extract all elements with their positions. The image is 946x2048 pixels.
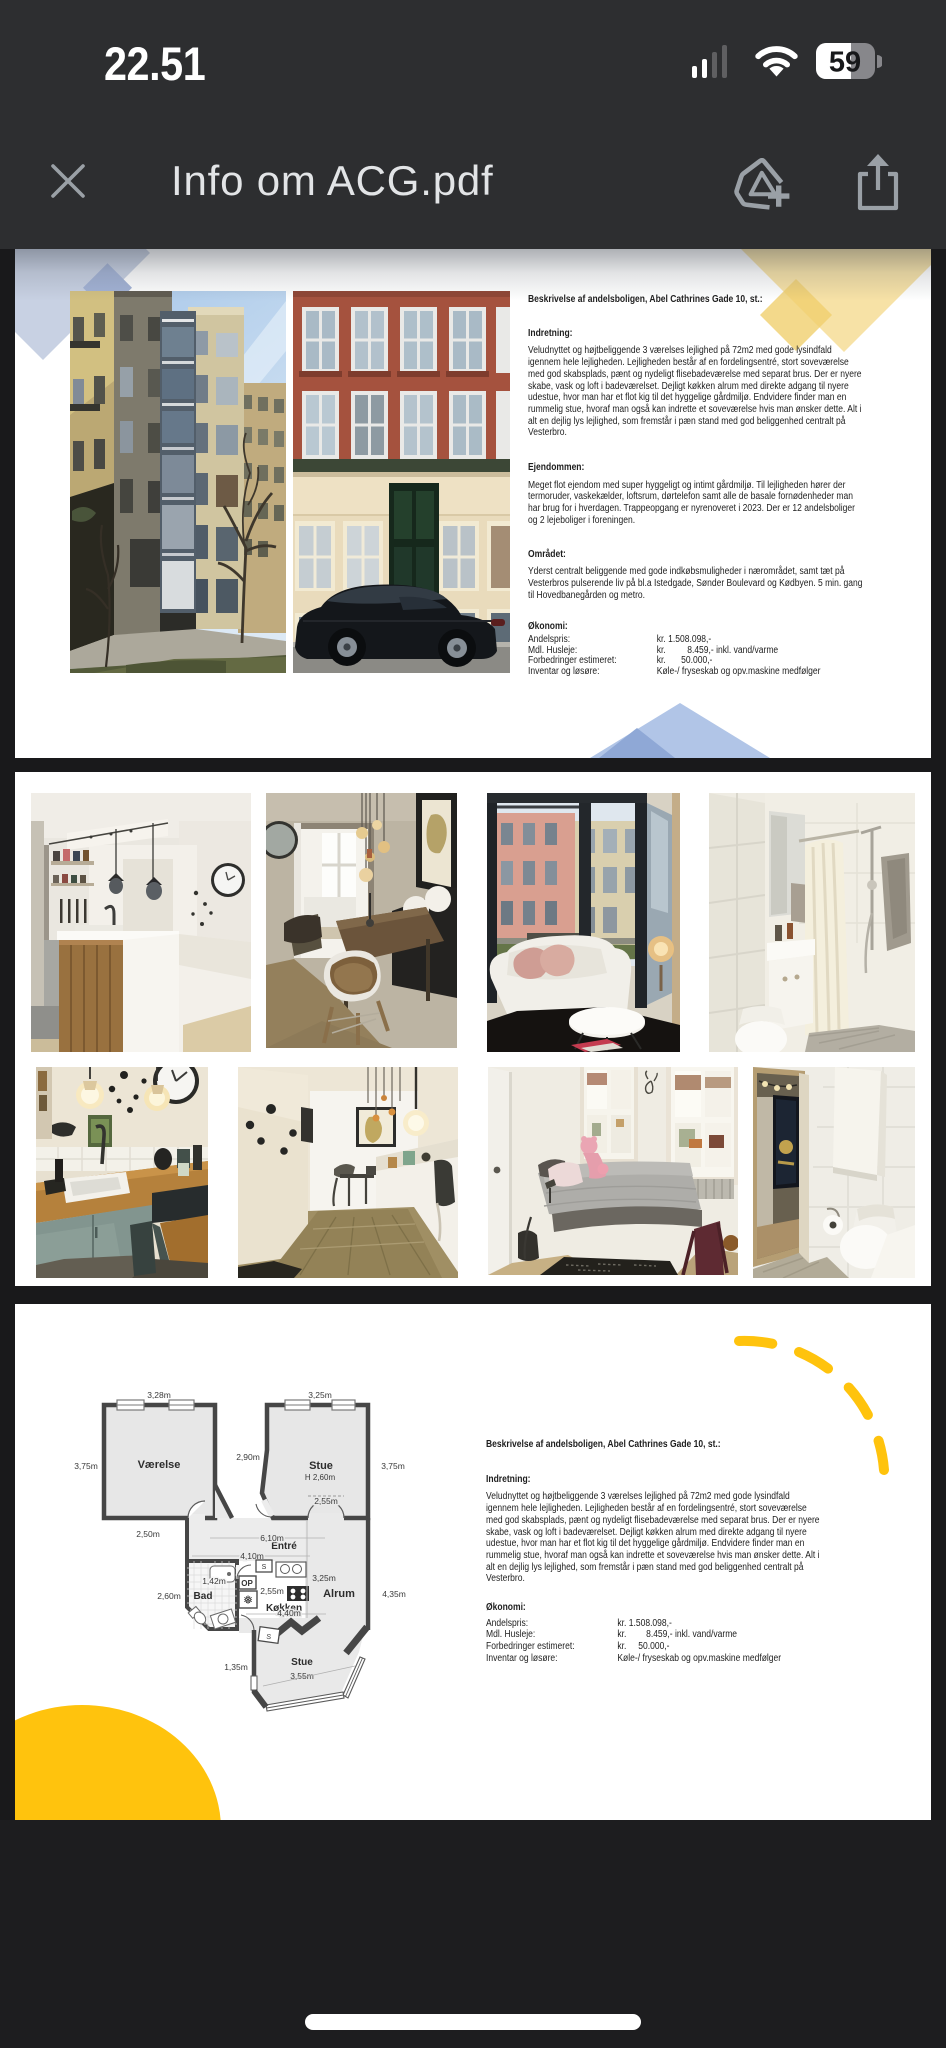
svg-text:4,40m: 4,40m: [277, 1608, 301, 1618]
svg-text:3,25m: 3,25m: [312, 1573, 336, 1583]
svg-text:6,10m: 6,10m: [260, 1533, 284, 1543]
svg-text:2,90m: 2,90m: [236, 1452, 260, 1462]
svg-text:3,25m: 3,25m: [308, 1390, 332, 1400]
svg-text:3,75m: 3,75m: [381, 1461, 405, 1471]
svg-text:Værelse: Værelse: [138, 1459, 181, 1471]
svg-text:2,55m: 2,55m: [260, 1586, 284, 1596]
svg-text:Stue: Stue: [309, 1460, 333, 1472]
svg-text:Alrum: Alrum: [323, 1588, 355, 1600]
svg-text:2,60m: 2,60m: [157, 1591, 181, 1601]
svg-text:1,42m: 1,42m: [202, 1576, 226, 1586]
svg-text:4,35m: 4,35m: [382, 1589, 406, 1599]
svg-text:Bad: Bad: [194, 1591, 213, 1602]
svg-text:1,35m: 1,35m: [224, 1662, 248, 1672]
svg-text:H 2,60m: H 2,60m: [305, 1473, 336, 1482]
svg-text:Stue: Stue: [291, 1657, 313, 1668]
svg-text:3,75m: 3,75m: [74, 1461, 98, 1471]
svg-text:❅: ❅: [243, 1593, 253, 1607]
svg-text:OP: OP: [241, 1579, 253, 1588]
svg-text:2,55m: 2,55m: [314, 1496, 338, 1506]
svg-text:59: 59: [829, 47, 861, 79]
svg-text:S: S: [262, 1564, 267, 1571]
svg-text:2,50m: 2,50m: [136, 1529, 160, 1539]
svg-text:3,28m: 3,28m: [147, 1390, 171, 1400]
